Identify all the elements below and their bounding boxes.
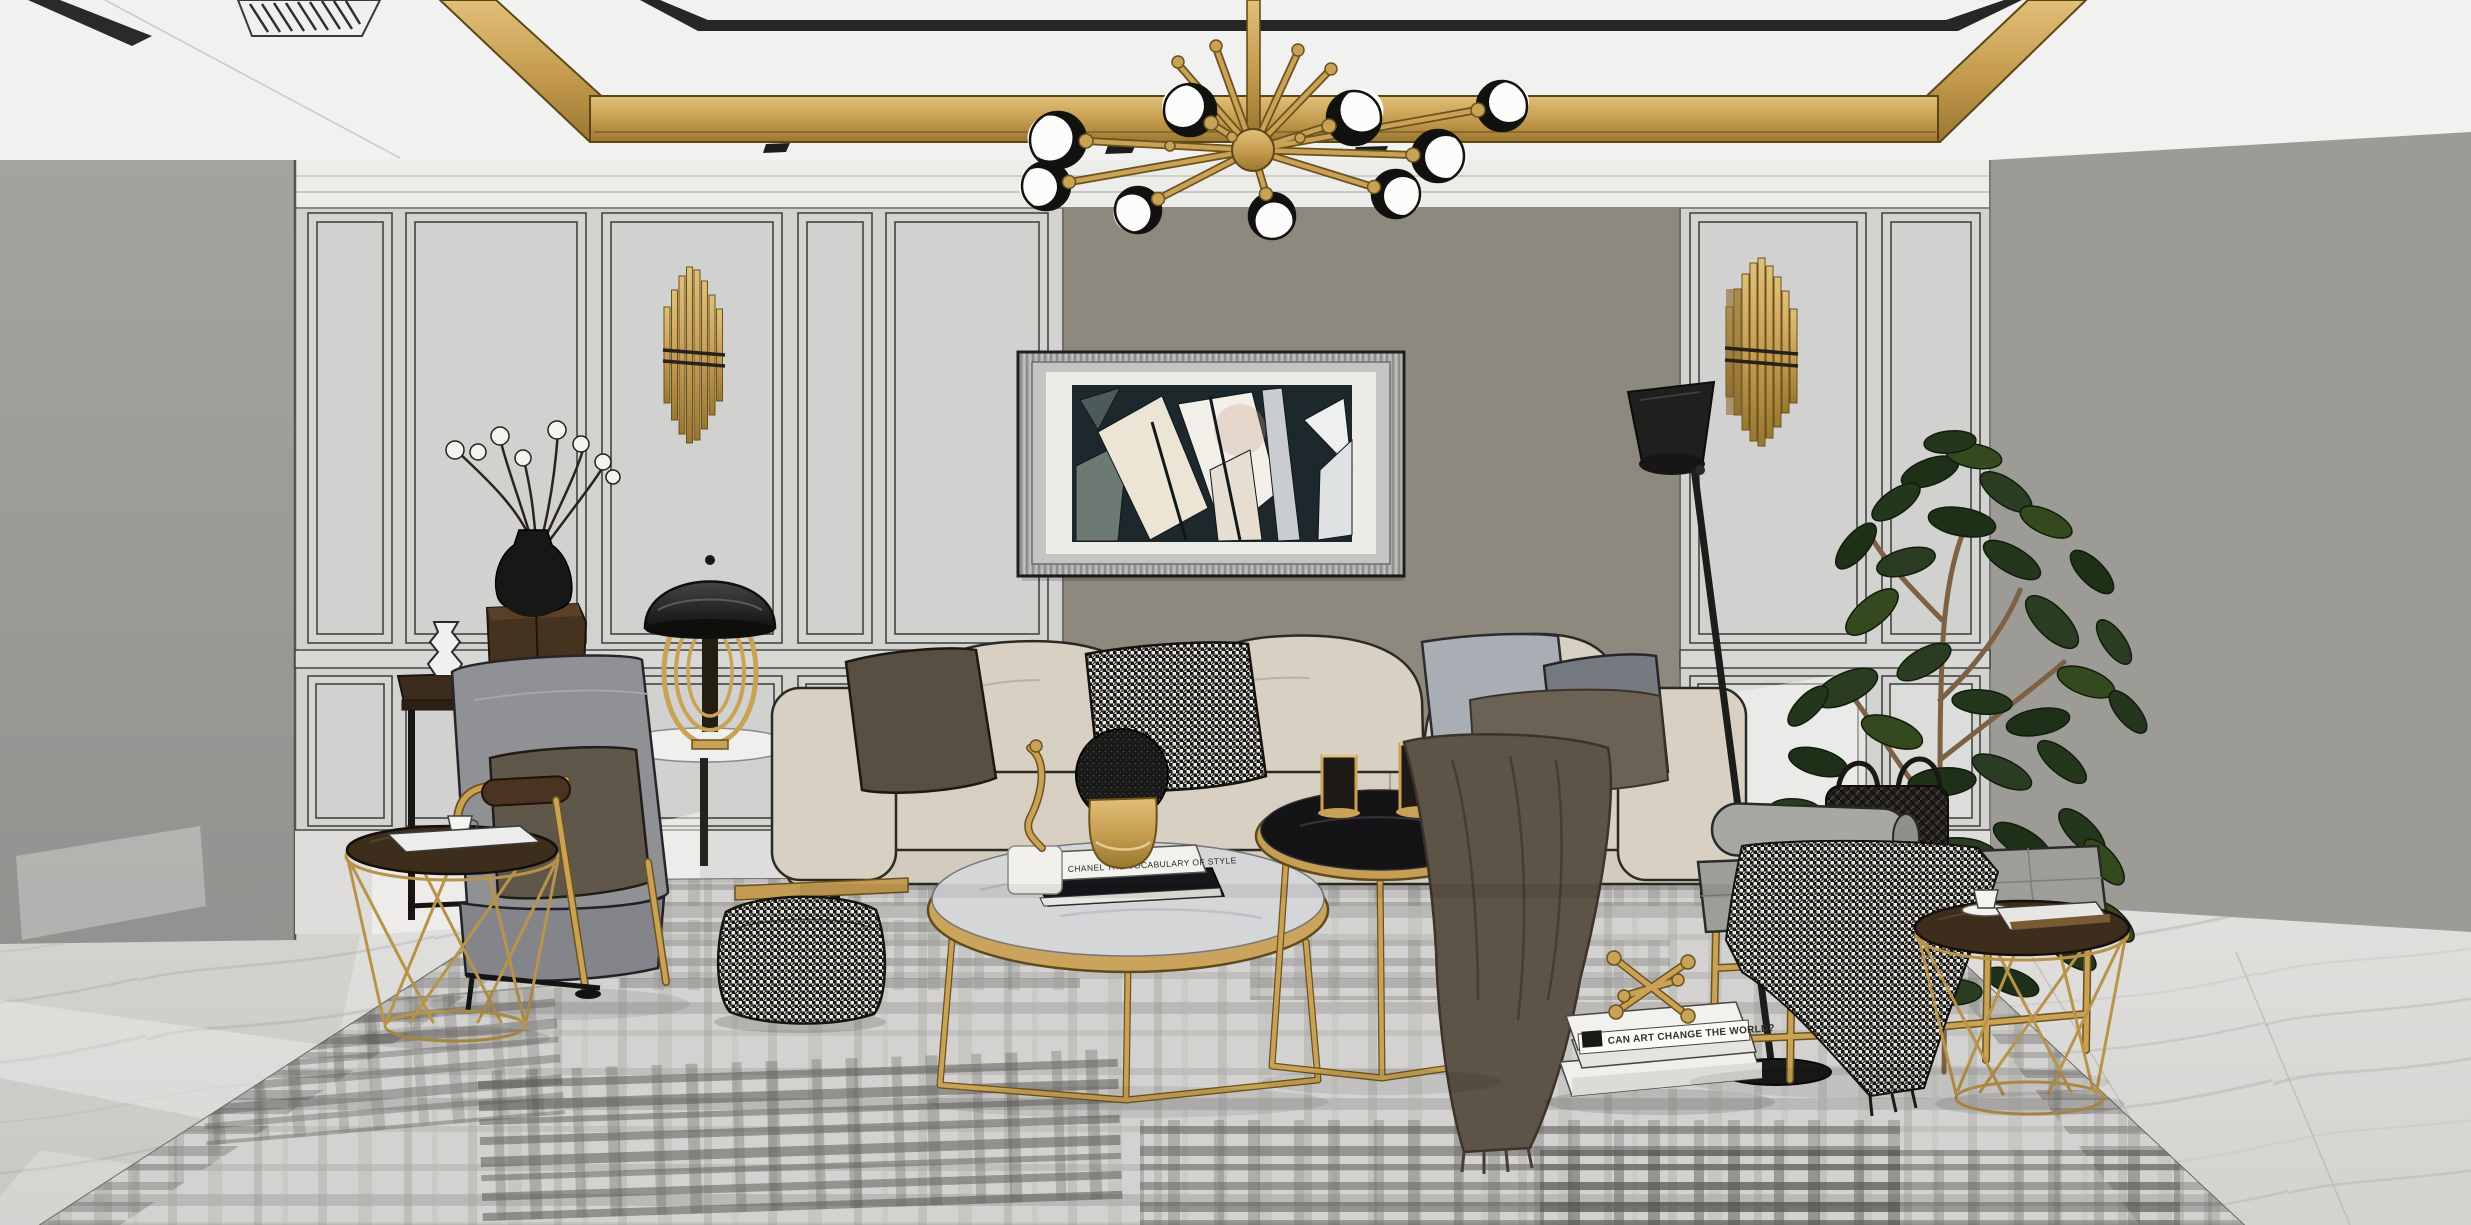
houndstooth-pouf — [714, 897, 886, 1033]
chandelier-stem — [1247, 0, 1260, 134]
pillow-brown — [846, 649, 996, 793]
wall-panels-left — [308, 213, 1048, 643]
ac-vent — [238, 0, 380, 36]
living-room-render: CHANEL THE VOCABULARY OF STYLE — [0, 0, 2471, 1225]
framed-artwork — [1018, 352, 1404, 581]
armchair-seat — [460, 897, 664, 981]
chandelier-hub — [1232, 129, 1274, 171]
left-side-wall — [0, 160, 295, 948]
wall-panels-right — [1690, 213, 1980, 643]
